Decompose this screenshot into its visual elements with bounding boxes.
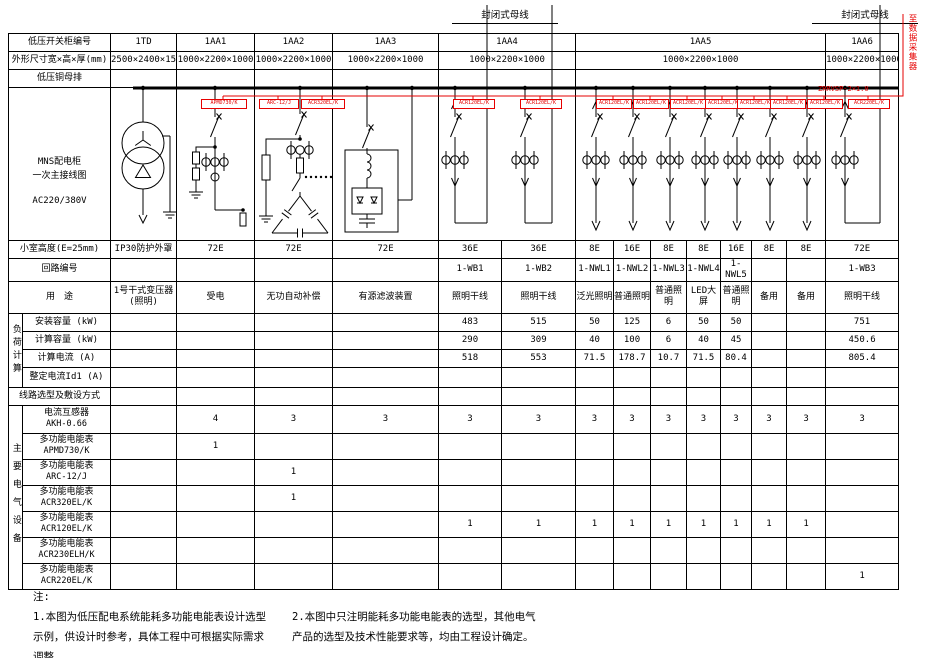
notes-block: 注: 1.本图为低压配电系统能耗多功能电能表设计选型示例，供设计时参考，具体工程…: [33, 588, 633, 658]
meter-label-box: ACR120EL/K: [633, 99, 669, 109]
row-label: 回路编号: [9, 259, 111, 282]
row-label: 安装容量 (kW): [23, 313, 111, 331]
table-cell: 36E: [502, 241, 576, 259]
table-cell: 1-NWL2: [614, 259, 651, 282]
table-cell: 1: [651, 511, 687, 537]
table-cell: 1: [752, 511, 787, 537]
table-cell: 10.7: [651, 349, 687, 367]
table-cell: 1: [614, 511, 651, 537]
table-cell: 16E: [721, 241, 752, 259]
table-cell: [752, 387, 787, 405]
busbar-cell: [177, 70, 255, 88]
table-cell: 40: [576, 331, 614, 349]
table-cell: [826, 537, 899, 563]
row-meter: 多功能电能表 ARC-12/J 1: [9, 459, 899, 485]
table-cell: [333, 331, 439, 349]
table-cell: [687, 485, 721, 511]
table-cell: [111, 485, 177, 511]
diagram-title-line1: MNS配电柜: [9, 157, 110, 168]
row-install-capacity: 负荷计算 安装容量 (kW) 4835155012565050751: [9, 313, 899, 331]
row-label: 低压开关柜编号: [9, 34, 111, 52]
table-cell: 8E: [651, 241, 687, 259]
row-dimensions: 外形尺寸宽×高×厚(mm) 2500×2400×1500 1000×2200×1…: [9, 52, 899, 70]
row-label: 小室高度(E=25mm): [9, 241, 111, 259]
cabinet-cell: 1AA6: [826, 34, 899, 52]
table-cell: [502, 433, 576, 459]
table-cell: 8E: [687, 241, 721, 259]
drawing-sheet: 封闭式母线 封闭式母线 低压开关柜编号 1TD 1AA1 1AA2 1AA3 1…: [0, 0, 931, 658]
table-cell: 1-WB3: [826, 259, 899, 282]
table-cell: [614, 367, 651, 387]
row-line-selection: 线路选型及敷设方式: [9, 387, 899, 405]
table-cell: 40: [687, 331, 721, 349]
table-cell: [111, 563, 177, 589]
row-ct: 主要电气设备 电流互感器 AKH-0.66 4333333333333: [9, 405, 899, 433]
table-cell: [439, 433, 502, 459]
table-cell: [576, 367, 614, 387]
dimension-cell: 1000×2200×1000: [439, 52, 576, 70]
row-label: 多功能电能表 ACR120EL/K: [23, 511, 111, 537]
table-cell: [333, 459, 439, 485]
table-cell: [502, 459, 576, 485]
table-cell: [111, 259, 177, 282]
cabinet-cell: 1AA5: [576, 34, 826, 52]
table-cell: [333, 563, 439, 589]
table-cell: [255, 387, 333, 405]
row-meter: 多功能电能表 ACR120EL/K 111111111: [9, 511, 899, 537]
meter-label-box: ACR120EL/K: [705, 99, 741, 109]
table-cell: IP30防护外罩: [111, 241, 177, 259]
table-cell: [787, 367, 826, 387]
busbar-cell: [576, 70, 826, 88]
table-cell: [502, 387, 576, 405]
table-cell: [177, 367, 255, 387]
diagram-cell: [111, 88, 177, 241]
table-cell: [502, 537, 576, 563]
table-cell: [721, 485, 752, 511]
table-cell: 72E: [255, 241, 333, 259]
table-cell: [576, 459, 614, 485]
table-cell: [111, 459, 177, 485]
table-cell: 71.5: [576, 349, 614, 367]
row-cabinet-no: 低压开关柜编号 1TD 1AA1 1AA2 1AA3 1AA4 1AA5 1AA…: [9, 34, 899, 52]
row-label: 计算电流 (A): [23, 349, 111, 367]
table-cell: [752, 313, 787, 331]
dimension-cell: 2500×2400×1500: [111, 52, 177, 70]
table-cell: [787, 349, 826, 367]
table-cell: [439, 563, 502, 589]
table-cell: 1: [439, 511, 502, 537]
row-calc-capacity: 计算容量 (kW) 2903094010064045450.6: [9, 331, 899, 349]
table-cell: [651, 367, 687, 387]
diagram-cell: [826, 88, 899, 241]
table-cell: 1: [721, 511, 752, 537]
table-cell: [787, 459, 826, 485]
table-cell: [333, 313, 439, 331]
table-cell: [826, 367, 899, 387]
table-cell: 309: [502, 331, 576, 349]
table-cell: 3: [651, 405, 687, 433]
table-cell: [752, 485, 787, 511]
cabinet-cell: 1AA4: [439, 34, 576, 52]
cabinet-cell: 1AA1: [177, 34, 255, 52]
table-cell: [255, 511, 333, 537]
meter-label-box: ACR120EL/K: [453, 99, 495, 109]
table-cell: [752, 459, 787, 485]
device-model: AKH-0.66: [23, 419, 110, 430]
table-cell: 805.4: [826, 349, 899, 367]
table-cell: [576, 485, 614, 511]
device-name: 多功能电能表: [23, 513, 110, 525]
dimension-cell: 1000×2200×1000: [576, 52, 826, 70]
diagram-cell: [255, 88, 333, 241]
device-name: 多功能电能表: [23, 461, 110, 473]
table-cell: 1-NWL4: [687, 259, 721, 282]
table-cell: 3: [255, 405, 333, 433]
meter-label-box: ARC-12/J: [259, 99, 299, 109]
table-cell: 553: [502, 349, 576, 367]
spec-table: 低压开关柜编号 1TD 1AA1 1AA2 1AA3 1AA4 1AA5 1AA…: [8, 33, 899, 590]
table-cell: [255, 367, 333, 387]
table-cell: [721, 387, 752, 405]
table-cell: [687, 537, 721, 563]
table-cell: 3: [502, 405, 576, 433]
table-cell: 1-NWL3: [651, 259, 687, 282]
table-cell: [651, 459, 687, 485]
table-cell: 备用: [752, 281, 787, 313]
table-cell: [787, 485, 826, 511]
table-cell: 泛光照明: [576, 281, 614, 313]
table-cell: 3: [333, 405, 439, 433]
table-cell: [111, 313, 177, 331]
table-cell: 3: [576, 405, 614, 433]
table-cell: [826, 387, 899, 405]
device-name: 多功能电能表: [23, 539, 110, 551]
row-meter: 多功能电能表 ACR320EL/K 1: [9, 485, 899, 511]
row-meter: 多功能电能表 APMD730/K 1: [9, 433, 899, 459]
table-cell: 1: [826, 563, 899, 589]
table-cell: [439, 485, 502, 511]
meter-label-box: ACR120EL/K: [807, 99, 843, 109]
row-cell-height: 小室高度(E=25mm) IP30防护外罩72E72E72E36E36E8E16…: [9, 241, 899, 259]
table-cell: [439, 537, 502, 563]
table-cell: [721, 459, 752, 485]
table-cell: [687, 563, 721, 589]
table-cell: 1: [787, 511, 826, 537]
table-cell: [177, 485, 255, 511]
table-cell: [333, 349, 439, 367]
table-cell: [111, 331, 177, 349]
table-cell: 无功自动补偿: [255, 281, 333, 313]
table-cell: [687, 387, 721, 405]
table-cell: [826, 433, 899, 459]
table-cell: [651, 563, 687, 589]
row-meter: 多功能电能表 ACR220EL/K 1: [9, 563, 899, 589]
table-cell: 1: [687, 511, 721, 537]
meter-label-box: ACR120EL/K: [770, 99, 806, 109]
table-cell: 71.5: [687, 349, 721, 367]
row-meter: 多功能电能表 ACR230ELH/K: [9, 537, 899, 563]
table-cell: [576, 387, 614, 405]
table-cell: [333, 511, 439, 537]
table-cell: 3: [687, 405, 721, 433]
table-cell: 1-WB2: [502, 259, 576, 282]
table-cell: [333, 537, 439, 563]
table-cell: [787, 387, 826, 405]
row-label: 线路选型及敷设方式: [9, 387, 111, 405]
busbar-cell: [439, 70, 576, 88]
device-name: 电流互感器: [23, 408, 110, 420]
table-cell: 1-NWL5: [721, 259, 752, 282]
dimension-cell: 1000×2200×1000: [177, 52, 255, 70]
device-model: ARC-12/J: [23, 472, 110, 483]
table-cell: 16E: [614, 241, 651, 259]
table-cell: [177, 313, 255, 331]
table-cell: [255, 313, 333, 331]
table-cell: 50: [576, 313, 614, 331]
table-cell: 4: [177, 405, 255, 433]
table-cell: [502, 367, 576, 387]
table-cell: 3: [826, 405, 899, 433]
table-cell: [721, 433, 752, 459]
table-cell: [255, 331, 333, 349]
table-cell: [614, 387, 651, 405]
table-cell: [752, 349, 787, 367]
table-cell: [333, 433, 439, 459]
table-cell: 178.7: [614, 349, 651, 367]
table-cell: 3: [721, 405, 752, 433]
table-cell: [651, 433, 687, 459]
collector-label: 至数据采集器: [906, 14, 918, 100]
table-cell: [255, 259, 333, 282]
table-cell: 8E: [752, 241, 787, 259]
table-cell: [787, 259, 826, 282]
table-cell: [614, 459, 651, 485]
table-cell: [721, 367, 752, 387]
table-cell: [111, 367, 177, 387]
device-model: ACR120EL/K: [23, 524, 110, 535]
table-cell: [787, 433, 826, 459]
meter-label-box: ACR120EL/K: [670, 99, 706, 109]
row-label: 多功能电能表 ARC-12/J: [23, 459, 111, 485]
table-cell: [651, 387, 687, 405]
table-cell: 3: [439, 405, 502, 433]
note-1: 1.本图为低压配电系统能耗多功能电能表设计选型示例，供设计时参考，具体工程中可根…: [33, 608, 270, 658]
table-cell: [787, 537, 826, 563]
device-name: 多功能电能表: [23, 487, 110, 499]
row-diagram: MNS配电柜 一次主接线图 AC220/380V: [9, 88, 899, 241]
bus-duct-label-mid: 封闭式母线: [452, 7, 558, 24]
table-cell: [614, 537, 651, 563]
table-cell: [576, 563, 614, 589]
table-cell: [687, 367, 721, 387]
table-cell: [614, 563, 651, 589]
table-cell: 照明干线: [502, 281, 576, 313]
table-cell: [826, 459, 899, 485]
meter-label-box: ACR120EL/K: [737, 99, 773, 109]
table-cell: [787, 331, 826, 349]
table-cell: 450.6: [826, 331, 899, 349]
diagram-cell: [439, 88, 576, 241]
table-cell: 72E: [826, 241, 899, 259]
table-cell: [439, 367, 502, 387]
table-cell: 3: [787, 405, 826, 433]
table-cell: 45: [721, 331, 752, 349]
meter-label-box: ACR120EL/K: [596, 99, 632, 109]
device-model: ACR320EL/K: [23, 498, 110, 509]
table-cell: 普通照明: [721, 281, 752, 313]
table-cell: [255, 537, 333, 563]
row-label: 外形尺寸宽×高×厚(mm): [9, 52, 111, 70]
table-cell: 6: [651, 331, 687, 349]
table-cell: [502, 563, 576, 589]
table-cell: [752, 537, 787, 563]
table-cell: [752, 563, 787, 589]
table-cell: [752, 433, 787, 459]
group-label-equipment: 主要电气设备: [9, 405, 23, 589]
notes-title: 注:: [33, 588, 633, 608]
table-cell: [752, 331, 787, 349]
row-label: 低压铜母排: [9, 70, 111, 88]
row-setting-current: 整定电流Id1 (A): [9, 367, 899, 387]
table-cell: 515: [502, 313, 576, 331]
diagram-title-line2: 一次主接线图: [9, 171, 110, 182]
row-label: 多功能电能表 ACR230ELH/K: [23, 537, 111, 563]
table-cell: 751: [826, 313, 899, 331]
table-cell: 3: [752, 405, 787, 433]
table-cell: [111, 387, 177, 405]
table-cell: [439, 387, 502, 405]
bus-duct-label-right: 封闭式母线: [812, 7, 918, 24]
device-model: ACR220EL/K: [23, 576, 110, 587]
table-cell: [177, 349, 255, 367]
row-label: 整定电流Id1 (A): [23, 367, 111, 387]
table-cell: 290: [439, 331, 502, 349]
device-model: ACR230ELH/K: [23, 550, 110, 561]
table-cell: [651, 485, 687, 511]
cabinet-cell: 1TD: [111, 34, 177, 52]
row-label: 计算容量 (kW): [23, 331, 111, 349]
table-cell: [752, 259, 787, 282]
table-cell: [111, 405, 177, 433]
device-name: 多功能电能表: [23, 435, 110, 447]
table-cell: 8E: [576, 241, 614, 259]
table-cell: 受电: [177, 281, 255, 313]
table-cell: [826, 485, 899, 511]
table-cell: [576, 433, 614, 459]
table-cell: 36E: [439, 241, 502, 259]
table-cell: [177, 331, 255, 349]
table-cell: [111, 349, 177, 367]
table-cell: 普通照明: [614, 281, 651, 313]
dimension-cell: 1000×2200×1000: [255, 52, 333, 70]
table-cell: 1: [177, 433, 255, 459]
table-cell: [721, 563, 752, 589]
table-cell: [576, 537, 614, 563]
table-cell: [687, 433, 721, 459]
table-cell: [255, 563, 333, 589]
diagram-cell: [177, 88, 255, 241]
meter-label-box: APMD730/K: [201, 99, 247, 109]
table-cell: [177, 259, 255, 282]
row-label: 电流互感器 AKH-0.66: [23, 405, 111, 433]
table-cell: 100: [614, 331, 651, 349]
table-cell: 518: [439, 349, 502, 367]
table-cell: [439, 459, 502, 485]
row-usage: 用 途 1号干式变压器(照明)受电无功自动补偿有源滤波装置照明干线照明干线泛光照…: [9, 281, 899, 313]
table-cell: 有源滤波装置: [333, 281, 439, 313]
table-cell: [255, 433, 333, 459]
row-label: 用 途: [9, 281, 111, 313]
table-cell: [111, 433, 177, 459]
dimension-cell: 1000×2200×1000: [333, 52, 439, 70]
table-cell: 1: [502, 511, 576, 537]
table-cell: LED大屏: [687, 281, 721, 313]
table-cell: 1-WB1: [439, 259, 502, 282]
dimension-cell: 1000×2200×1000: [826, 52, 899, 70]
table-cell: [614, 485, 651, 511]
table-cell: [111, 537, 177, 563]
table-cell: 备用: [787, 281, 826, 313]
table-cell: [752, 367, 787, 387]
table-cell: 1号干式变压器(照明): [111, 281, 177, 313]
note-2: 2.本图中只注明能耗多功能电能表的选型，其他电气产品的选型及技术性能要求等，均由…: [292, 608, 542, 658]
meter-label-box: ACR220EL/K: [848, 99, 890, 109]
collector-cable-label: ZRRVSP-2×1.0: [818, 85, 869, 93]
table-cell: 照明干线: [439, 281, 502, 313]
table-cell: 8E: [787, 241, 826, 259]
row-label: 多功能电能表 ACR220EL/K: [23, 563, 111, 589]
table-cell: [721, 537, 752, 563]
table-cell: 1: [255, 485, 333, 511]
table-cell: 普通照明: [651, 281, 687, 313]
cabinet-cell: 1AA2: [255, 34, 333, 52]
busbar-cell: [111, 70, 177, 88]
table-cell: [614, 433, 651, 459]
group-label-load-calc: 负荷计算: [9, 313, 23, 387]
table-cell: [502, 485, 576, 511]
diagram-cell: [333, 88, 439, 241]
cabinet-cell: 1AA3: [333, 34, 439, 52]
diagram-cell: [576, 88, 826, 241]
busbar-cell: [255, 70, 333, 88]
row-label: 多功能电能表 APMD730/K: [23, 433, 111, 459]
table-cell: [255, 349, 333, 367]
meter-label-box: ACR120EL/K: [520, 99, 562, 109]
row-label: 多功能电能表 ACR320EL/K: [23, 485, 111, 511]
table-cell: [177, 511, 255, 537]
table-cell: 72E: [177, 241, 255, 259]
meter-label-box: ACR320EL/K: [301, 99, 345, 109]
table-cell: [177, 387, 255, 405]
table-cell: [333, 485, 439, 511]
table-cell: 1: [255, 459, 333, 485]
table-cell: 483: [439, 313, 502, 331]
row-calc-current: 计算电流 (A) 51855371.5178.710.771.580.4805.…: [9, 349, 899, 367]
table-cell: [111, 511, 177, 537]
table-cell: [826, 511, 899, 537]
table-cell: 1: [576, 511, 614, 537]
device-name: 多功能电能表: [23, 565, 110, 577]
busbar-cell: [333, 70, 439, 88]
diagram-title-cell: MNS配电柜 一次主接线图 AC220/380V: [9, 88, 111, 241]
table-cell: [333, 387, 439, 405]
table-cell: [687, 459, 721, 485]
table-cell: 125: [614, 313, 651, 331]
table-cell: [177, 459, 255, 485]
table-cell: [333, 259, 439, 282]
table-cell: 1-NWL1: [576, 259, 614, 282]
